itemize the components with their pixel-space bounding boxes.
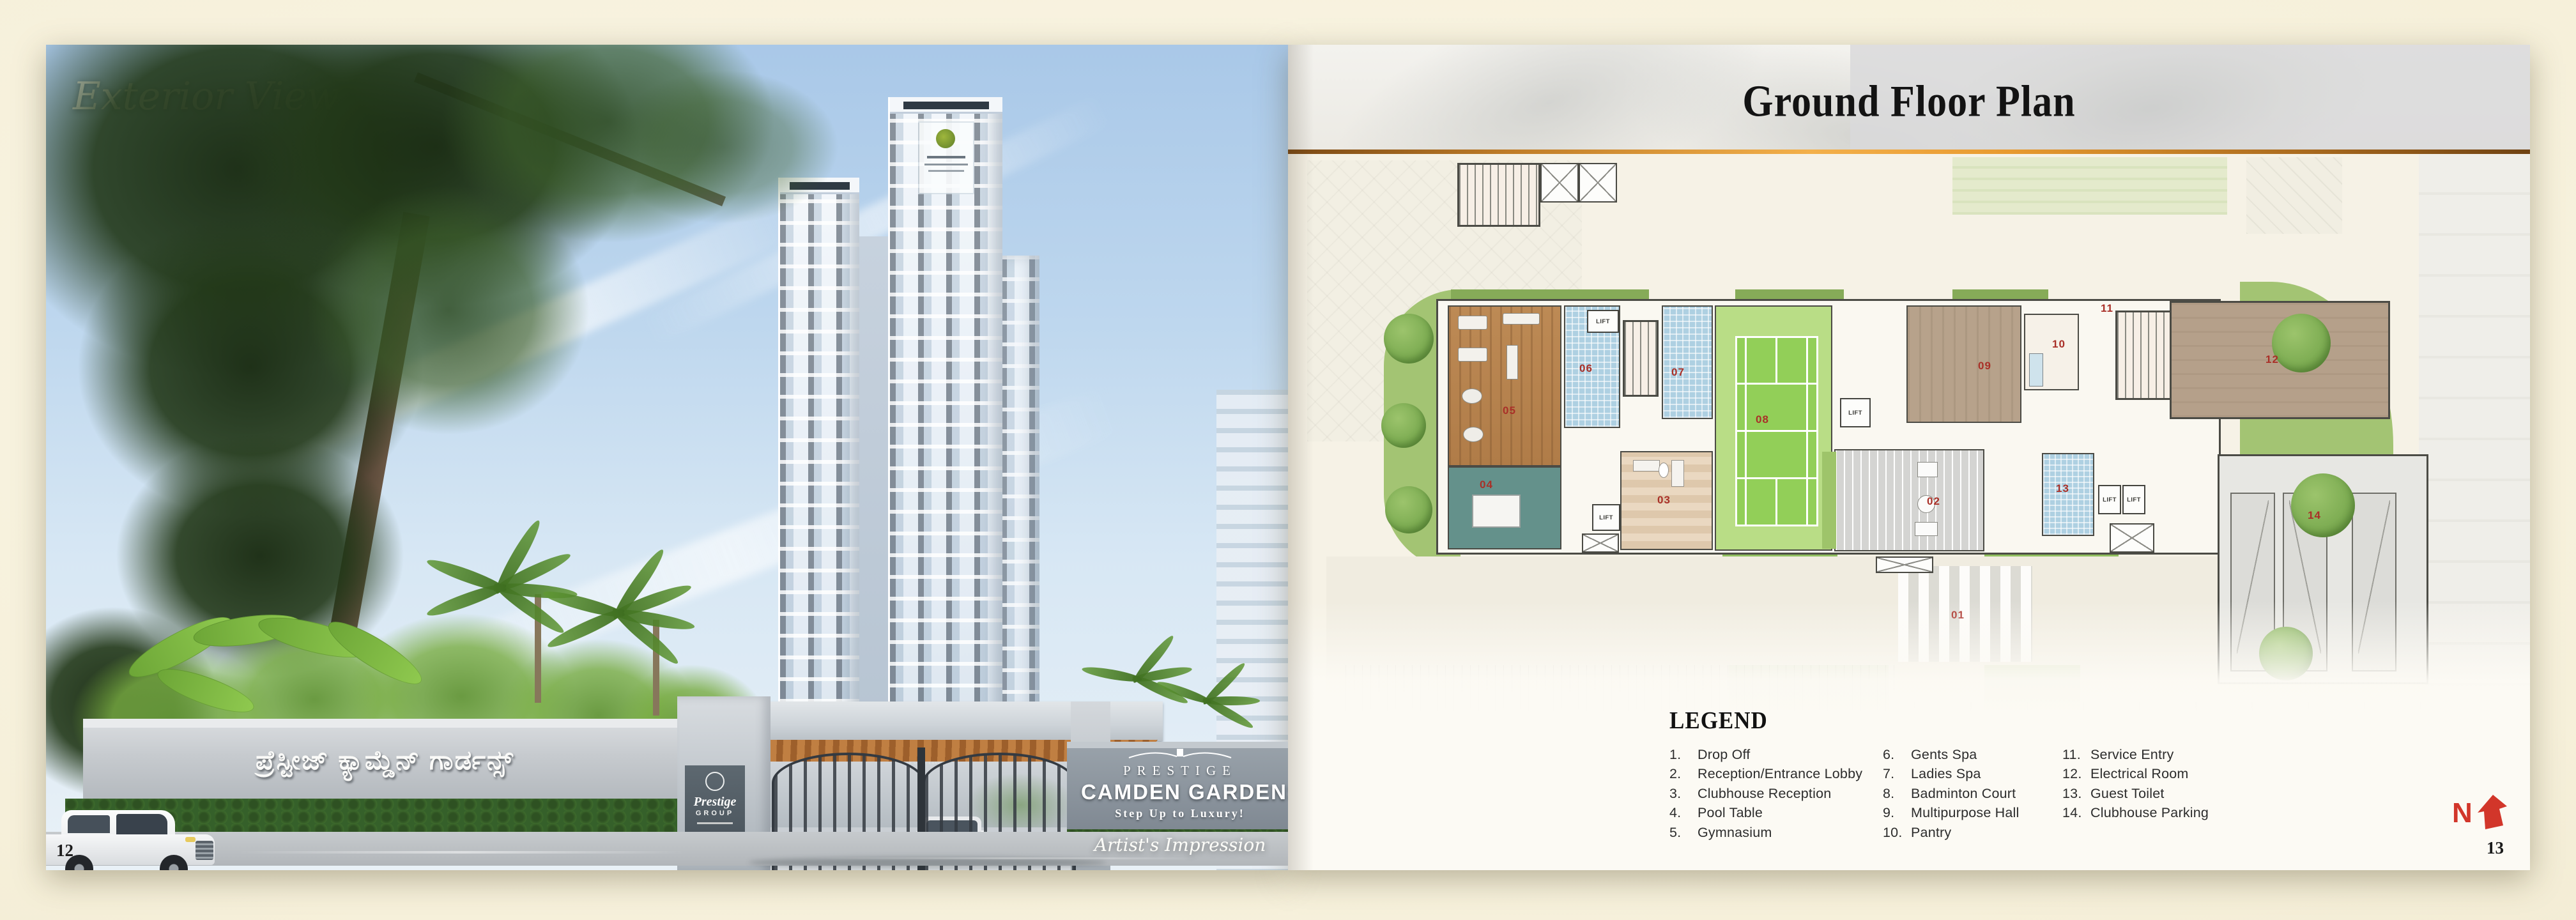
room-pantry	[2024, 314, 2079, 390]
plan-room-number: 09	[1978, 360, 1991, 372]
tower-parapet	[890, 97, 1002, 114]
lift: LIFT	[2098, 485, 2121, 514]
right-page-ground-floor-plan: Ground Floor Plan	[1288, 45, 2530, 870]
entrance-sign-brand: PRESTIGE	[1081, 763, 1279, 779]
planter-pocket	[1822, 452, 1836, 549]
legend-item: 1.Drop Off	[1669, 745, 1880, 765]
page-title: Ground Floor Plan	[1288, 77, 2530, 128]
legend-item: 8.Badminton Court	[1883, 784, 2055, 804]
legend-item: 7.Ladies Spa	[1883, 765, 2055, 785]
plan-room-number: 10	[2052, 338, 2066, 351]
tree-icon	[1381, 403, 1426, 448]
stair-core	[1623, 320, 1659, 397]
lift: LIFT	[1587, 310, 1619, 333]
room-pool-table	[1448, 466, 1561, 549]
entrance-sign-tagline: Step Up to Luxury!	[1081, 807, 1279, 820]
pillar-sign-suffix: GROUP	[685, 809, 745, 817]
palm-trunk	[653, 620, 659, 716]
canopy-shadow	[749, 857, 1107, 868]
exterior-photo: ಪ್ರೆಸ್ಟೀಜ್ ಕ್ಯಾಮ್ಡೆನ್ ಗಾರ್ಡನ್ಸ್ PRESTIGE…	[46, 45, 1288, 870]
tree-icon	[2291, 473, 2355, 537]
tower-emblem-plate	[919, 123, 973, 193]
lift: LIFT	[2122, 485, 2145, 514]
plan-room-number: 07	[1671, 366, 1685, 379]
lift-shaft	[2110, 523, 2154, 553]
site-lawn	[1952, 157, 2227, 215]
floor-plan: LIFT LIFT LIFT LIFT LIFT 01 02 03 04 05 …	[1288, 154, 2530, 729]
plan-room-number: 14	[2308, 509, 2321, 522]
stair-block	[1457, 163, 1540, 227]
legend-item: 9.Multipurpose Hall	[1883, 804, 2055, 824]
lift-shaft	[1540, 163, 1579, 203]
compound-wall-sign-text: ಪ್ರೆಸ್ಟೀಜ್ ಕ್ಯಾಮ್ಡೆನ್ ಗಾರ್ಡನ್ಸ್	[256, 745, 514, 776]
legend-item: 14.Clubhouse Parking	[2062, 804, 2241, 824]
legend-column-2: 6.Gents Spa 7.Ladies Spa 8.Badminton Cou…	[1883, 745, 2055, 843]
lift-shaft	[1579, 163, 1617, 203]
legend-item: 13.Guest Toilet	[2062, 784, 2241, 804]
lift: LIFT	[1840, 398, 1871, 427]
legend-item: 10.Pantry	[1883, 823, 2055, 843]
pillar-sign-logo-icon	[705, 772, 724, 791]
page-number-left: 12	[56, 841, 73, 861]
legend-column-1: 1.Drop Off 2.Reception/Entrance Lobby 3.…	[1669, 745, 1880, 843]
room-multipurpose-hall	[1906, 305, 2021, 423]
road-reflection	[238, 851, 685, 854]
legend-item: 12.Electrical Room	[2062, 765, 2241, 785]
brochure-spread: ಪ್ರೆಸ್ಟೀಜ್ ಕ್ಯಾಮ್ಡೆನ್ ಗಾರ್ಡನ್ಸ್ PRESTIGE…	[0, 0, 2576, 920]
room-gymnasium	[1448, 305, 1561, 466]
entrance-sign-project: CAMDEN GARDENS	[1081, 780, 1279, 804]
plan-room-number: 05	[1503, 404, 1516, 417]
plan-room-number: 11	[2101, 302, 2113, 315]
plan-room-number: 12	[2265, 353, 2279, 366]
left-page-exterior-view: ಪ್ರೆಸ್ಟೀಜ್ ಕ್ಯಾಮ್ಡೆನ್ ಗಾರ್ಡನ್ಸ್ PRESTIGE…	[46, 45, 1288, 870]
pillar-sign-brand: Prestige	[685, 795, 745, 809]
north-label: N	[2452, 797, 2472, 829]
artists-impression-caption: Artist's Impression	[1087, 834, 1273, 855]
plan-room-number: 04	[1480, 479, 1493, 491]
plan-room-number: 06	[1579, 362, 1593, 375]
tree-canopy-blob	[308, 185, 589, 434]
sign-ornament-icon	[1126, 747, 1234, 762]
gold-divider	[1288, 149, 2530, 154]
lift: LIFT	[1592, 504, 1620, 531]
emblem-text-line	[928, 170, 964, 172]
compound-wall: ಪ್ರೆಸ್ಟೀಜ್ ಕ್ಯಾಮ್ಡೆನ್ ಗಾರ್ಡನ್ಸ್	[83, 719, 687, 802]
north-compass: N	[2452, 797, 2472, 829]
legend-column-3: 11.Service Entry 12.Electrical Room 13.G…	[2062, 745, 2241, 823]
emblem-text-line	[927, 156, 965, 158]
room-ladies-spa	[1662, 305, 1713, 419]
room-entrance-lobby	[1834, 449, 1984, 551]
lift-shaft	[1876, 556, 1933, 573]
pillar-sign-divider	[697, 822, 733, 824]
site-paving	[2246, 157, 2342, 234]
plan-room-number: 02	[1927, 495, 1940, 508]
legend-item: 2.Reception/Entrance Lobby	[1669, 765, 1880, 785]
emblem-text-line	[924, 164, 968, 165]
tree-icon	[1385, 486, 1432, 533]
legend-item: 6.Gents Spa	[1883, 745, 2055, 765]
legend-item: 3.Clubhouse Reception	[1669, 784, 1880, 804]
legend-item: 5.Gymnasium	[1669, 823, 1880, 843]
foreground-car	[46, 810, 220, 870]
north-arrow-icon	[2474, 793, 2515, 833]
room-badminton-court	[1715, 305, 1832, 551]
plan-room-number: 03	[1657, 494, 1671, 507]
developer-logo-icon	[936, 129, 955, 148]
tree-canopy-blob	[608, 70, 838, 224]
lift-shaft	[1582, 533, 1619, 553]
page-number-right: 13	[2487, 838, 2504, 858]
tree-icon	[1384, 314, 1434, 364]
legend-title: LEGEND	[1669, 707, 1768, 734]
badminton-court-surface	[1735, 336, 1818, 526]
legend-item: 4.Pool Table	[1669, 804, 1880, 824]
plan-room-number: 08	[1756, 413, 1769, 426]
page-fold-shadow	[1288, 45, 1314, 870]
plan-room-number: 13	[2056, 482, 2069, 495]
tree-icon	[2272, 314, 2331, 372]
legend-item: 11.Service Entry	[2062, 745, 2241, 765]
entrance-sign-block: PRESTIGE CAMDEN GARDENS Step Up to Luxur…	[1081, 747, 1279, 820]
